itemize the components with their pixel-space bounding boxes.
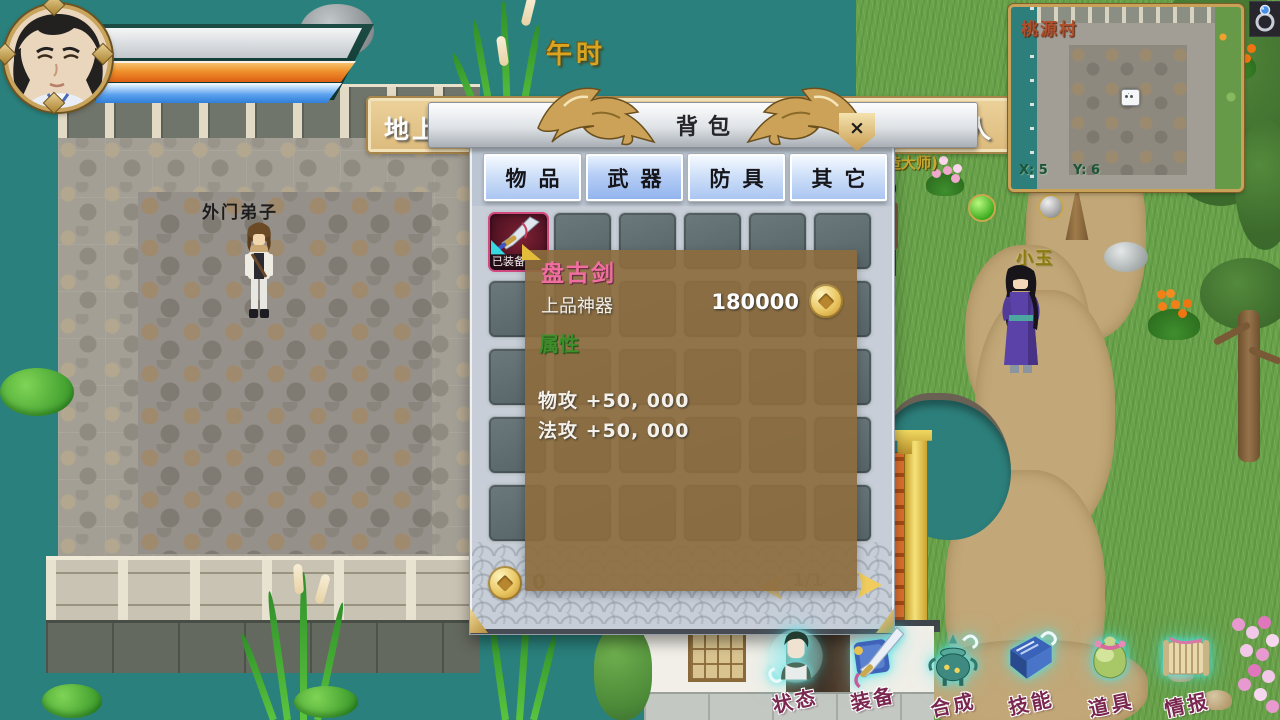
bush	[594, 624, 652, 720]
item-bag-icon	[1080, 628, 1144, 692]
tab-weapons[interactable]: 武器	[586, 154, 683, 201]
dialog-title: 背包	[666, 109, 740, 141]
attributes-header: 属性	[539, 328, 579, 357]
menu-button-skills[interactable]: 技能	[996, 626, 1072, 720]
minimap-courtyard	[1069, 45, 1187, 175]
minimap: 桃源村 X: 5 Y: 6	[1008, 4, 1244, 192]
equipment-icon	[842, 622, 906, 686]
minimap-player-marker	[1121, 89, 1140, 106]
skills-icon	[1000, 626, 1064, 690]
menu-button-synthesis[interactable]: 合成	[918, 628, 994, 720]
tab-items[interactable]: 物品	[484, 154, 581, 201]
minimap-coord-x: X: 5	[1019, 163, 1048, 178]
close-icon: ×	[849, 113, 865, 143]
attribute-magic-attack: 法攻 +50, 000	[538, 416, 689, 443]
game-screen: 外门弟子 小玉	[0, 0, 1280, 720]
ring-item-pickup[interactable]	[1250, 2, 1280, 36]
time-of-day-label: 午时	[546, 34, 606, 71]
mp-bar	[96, 83, 342, 103]
tab-armor[interactable]: 防具	[688, 154, 785, 201]
hp-bar	[96, 61, 356, 82]
item-tooltip: 盘古剑 上品神器 180000 属性 物攻 +50, 000 法攻 +50, 0…	[525, 250, 857, 591]
price-coin-icon	[809, 284, 843, 318]
minimap-coord-y: Y: 6	[1073, 163, 1100, 178]
attribute-physical-attack: 物攻 +50, 000	[538, 386, 689, 413]
rock	[1104, 242, 1148, 272]
lily-pad	[294, 686, 358, 718]
courtyard-balustrade	[46, 556, 480, 624]
minimap-title: 桃源村	[1021, 15, 1078, 40]
player-avatar[interactable]	[4, 4, 112, 112]
blossom-tree	[1232, 618, 1280, 720]
courtyard-wall	[46, 620, 480, 673]
npc-disciple-sprite[interactable]	[242, 220, 276, 326]
orange-flowers	[1148, 284, 1200, 340]
grey-orb[interactable]	[1038, 194, 1064, 220]
name-plate-bar	[94, 28, 362, 58]
courtyard-pebble-area	[138, 192, 432, 554]
synthesis-icon	[922, 628, 986, 692]
item-grade: 上品神器	[541, 292, 613, 318]
npc-xiaoyu-sprite[interactable]	[998, 264, 1044, 378]
shrine-pillar	[904, 436, 928, 632]
scroll-icon	[1156, 628, 1220, 692]
slot-corner-marker	[491, 240, 506, 255]
tab-other[interactable]: 其它	[790, 154, 887, 201]
status-icon	[764, 624, 828, 688]
menu-button-status[interactable]: 状态	[760, 624, 836, 718]
dialog-title-bar: 背包	[428, 102, 978, 148]
gold-coin-icon	[488, 566, 522, 600]
minimap-grass-strip	[1215, 7, 1241, 189]
item-name: 盘古剑	[541, 254, 616, 288]
menu-button-equipment[interactable]: 装备	[838, 622, 914, 716]
tooltip-corner-fold	[522, 244, 541, 260]
menu-button-props[interactable]: 道具	[1076, 628, 1152, 720]
green-orb[interactable]	[968, 194, 996, 222]
building-window	[688, 630, 746, 682]
lily-pad	[42, 684, 102, 718]
dragon-ornament-left	[534, 80, 658, 152]
menu-button-info[interactable]: 情报	[1152, 628, 1228, 720]
tree-trunk	[1238, 310, 1260, 462]
lily-pad	[0, 368, 74, 416]
item-price: 180000	[711, 290, 799, 314]
